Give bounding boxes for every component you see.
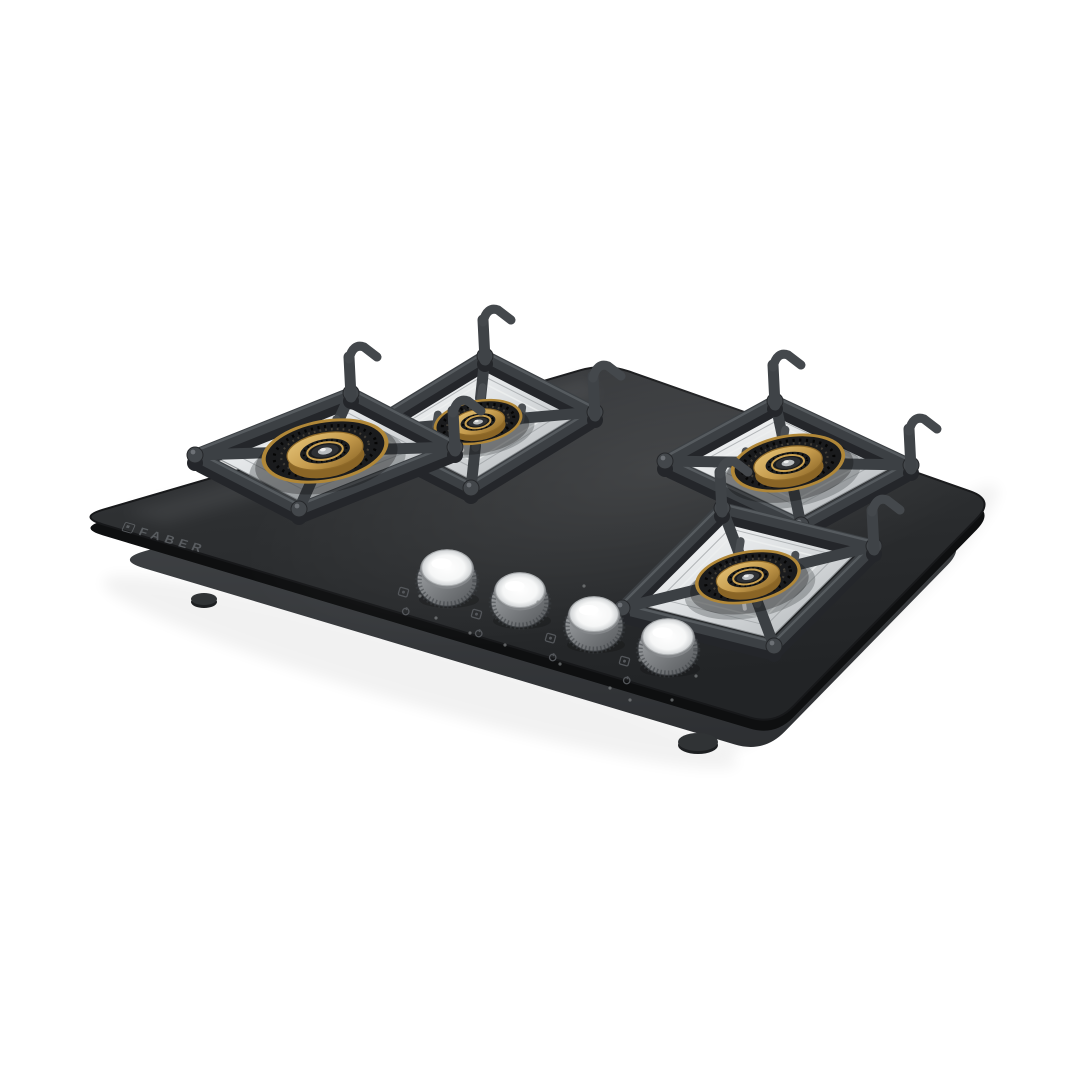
glass-speck <box>503 643 506 646</box>
glass-speck <box>582 584 585 587</box>
logo-mark-icon <box>121 522 136 534</box>
glass-speck <box>434 616 437 619</box>
glass-speck <box>418 594 421 597</box>
glass-speck <box>468 631 471 634</box>
glass-speck <box>558 662 561 665</box>
glass-speck <box>628 698 631 701</box>
glass-speck <box>694 674 697 677</box>
product-photo-gas-hob: FABER <box>0 0 1080 1080</box>
glass-speck <box>608 686 611 689</box>
rubber-foot <box>191 593 217 605</box>
glass-speck <box>670 698 673 701</box>
glass-speck <box>638 658 641 661</box>
pan-support-arm <box>520 412 595 418</box>
glass-speck <box>536 600 539 603</box>
rubber-foot <box>678 733 718 751</box>
